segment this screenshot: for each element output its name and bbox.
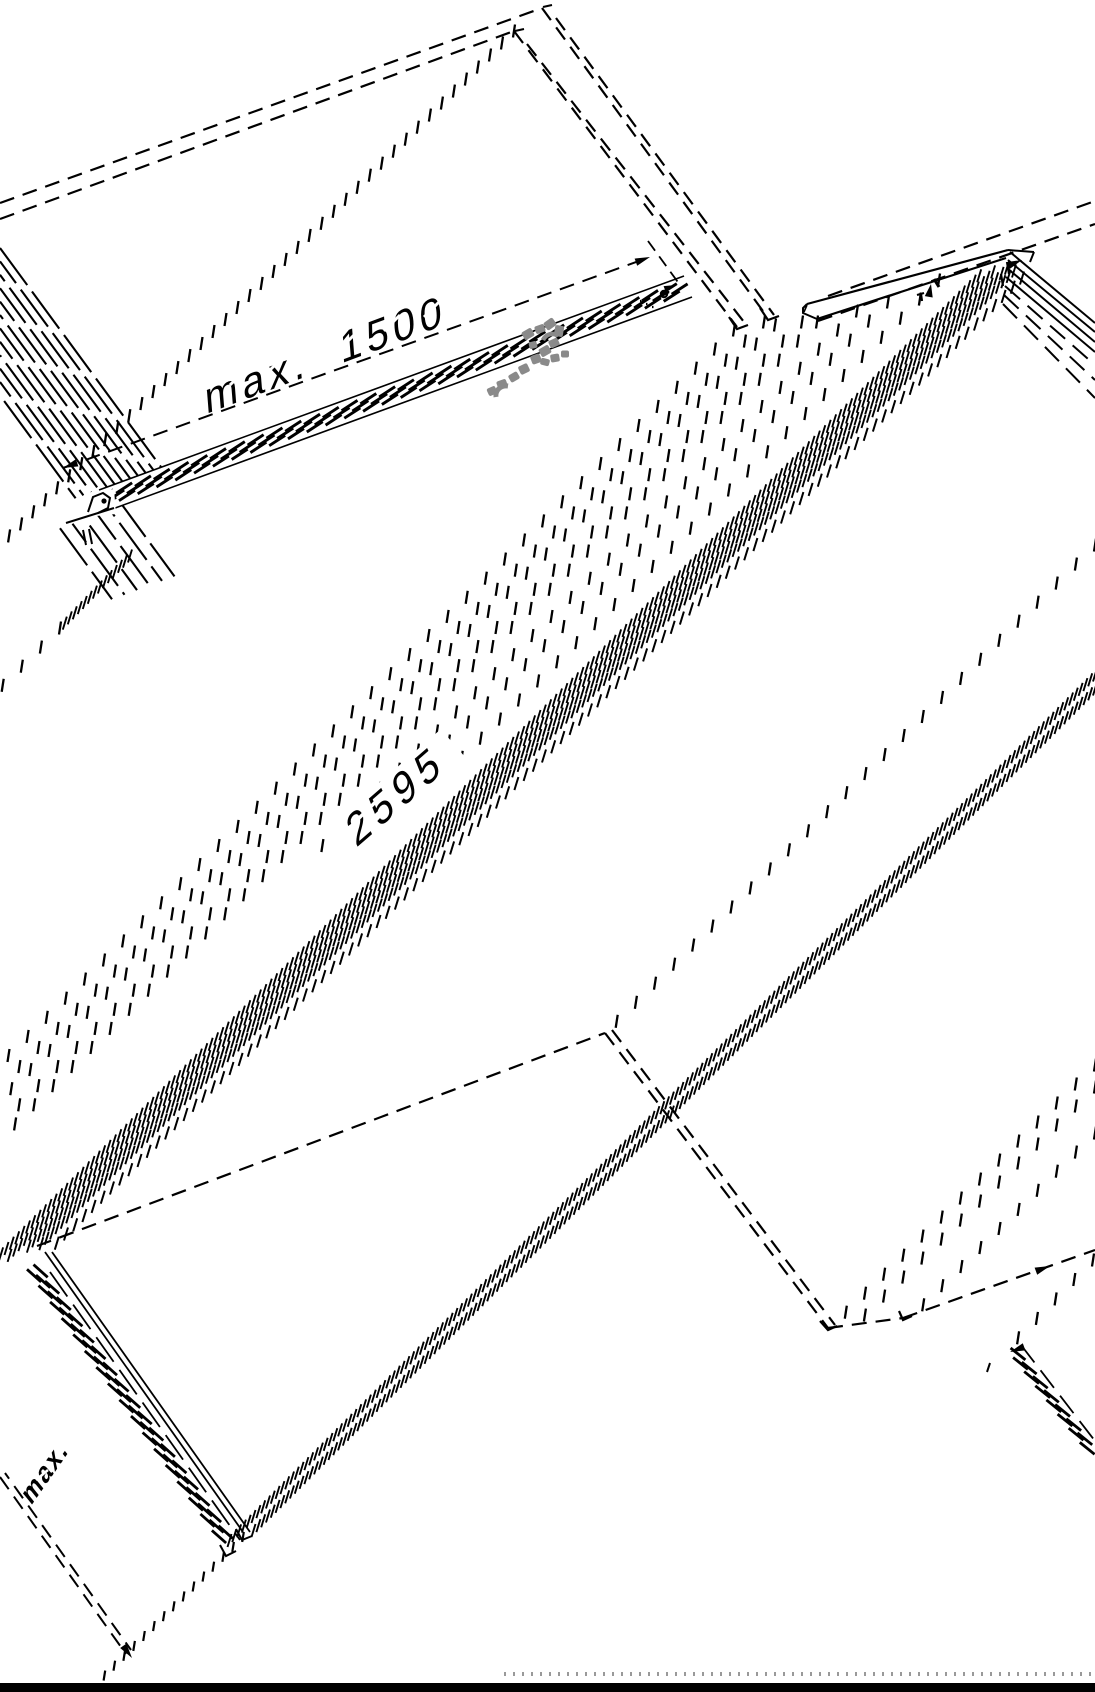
svg-text:2595: 2595 (340, 733, 452, 857)
svg-text:max. 1500: max. 1500 (203, 285, 448, 424)
